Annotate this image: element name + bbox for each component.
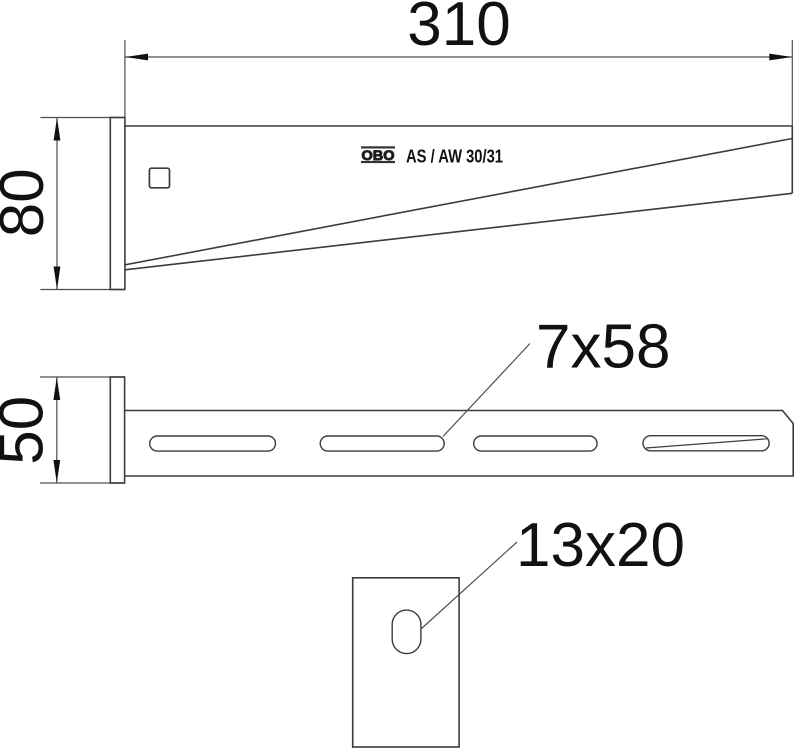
svg-text:AS / AW 30/31: AS / AW 30/31 [406, 145, 503, 166]
svg-text:7x58: 7x58 [536, 313, 670, 382]
svg-text:13x20: 13x20 [516, 511, 685, 580]
svg-text:50: 50 [0, 396, 57, 465]
svg-text:OBO: OBO [362, 148, 395, 163]
svg-text:310: 310 [407, 0, 510, 59]
svg-text:80: 80 [0, 168, 57, 237]
